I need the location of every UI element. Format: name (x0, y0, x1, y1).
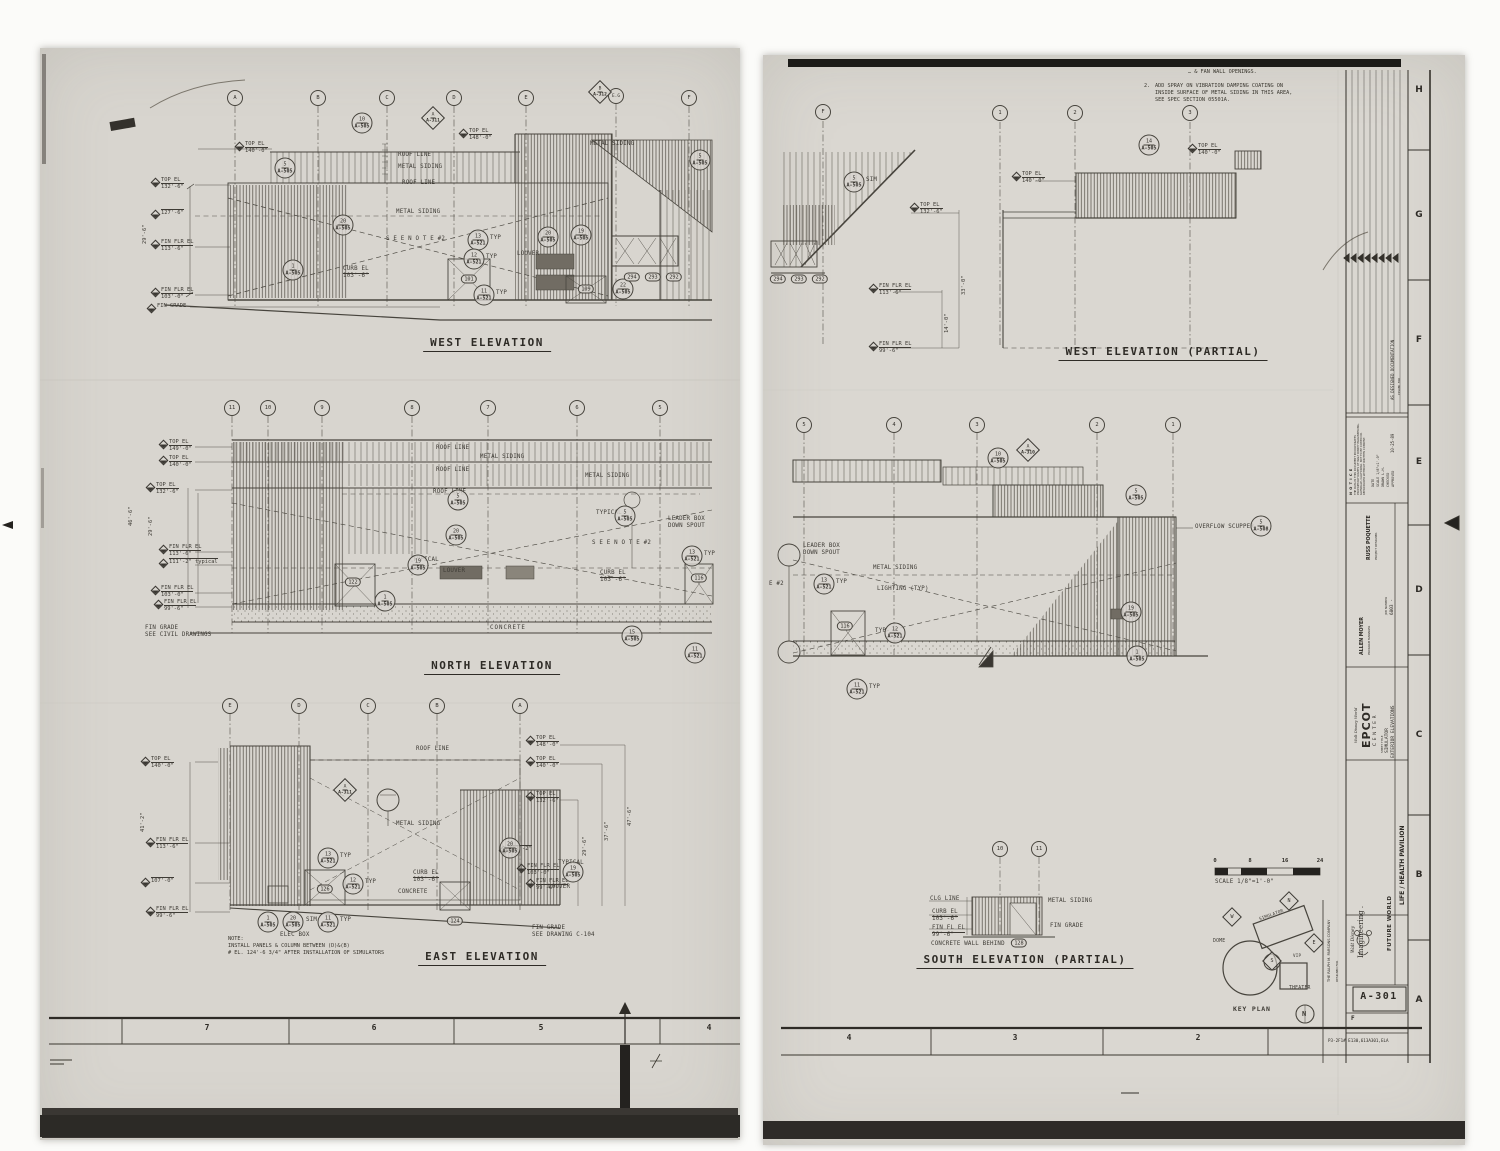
drawing-label: LOUVER (548, 884, 570, 891)
detail-bubble: 20A-505 (538, 227, 559, 248)
epcot-logo: EPCOT (1360, 702, 1373, 748)
drawing-label: LOUVER (443, 568, 465, 575)
detail-bubble: 1A-505 (375, 591, 396, 612)
drawing-label: CONCRETE (398, 889, 428, 896)
drawing-label: 103'-6" (932, 916, 958, 923)
drawing-label: METAL SIDING (590, 141, 634, 148)
drawing-title: EAST ELEVATION (418, 950, 546, 966)
border-row-letter: H (1415, 85, 1423, 95)
grid-bubble: F (681, 90, 697, 106)
grid-bubble: 5 (652, 400, 668, 416)
drawing-label: CONCRETE WALL BEHIND (931, 941, 1005, 948)
elevation-marker: FIN FLR EL99'-6" (155, 599, 196, 612)
general-note: SEE SPEC SECTION 05501A. (1155, 97, 1230, 104)
grid-bubble: E (222, 698, 238, 714)
typ-label: TYP (869, 684, 880, 691)
grid-bubble: 10 (260, 400, 276, 416)
margin-arrow (2, 521, 13, 529)
elevation-marker: FIN FLR EL99'-6" (147, 906, 188, 919)
keyplan-title: KEY PLAN (1233, 1005, 1271, 1013)
elevation-marker: 107'-0" (142, 877, 174, 886)
drawing-label: FIN GRADE (145, 625, 178, 632)
room-tag: 293 (645, 273, 661, 282)
keyplan-vip-label: VIP (1293, 953, 1301, 960)
drawing-label: METAL SIDING (1048, 898, 1092, 905)
detail-bubble: 5A-505 (275, 158, 296, 179)
grid-bubble: 1 (1165, 417, 1181, 433)
drawing-label: ROOF LINE (436, 445, 469, 452)
detail-bubble: 5A-505 (1126, 485, 1147, 506)
detail-bubble: 19A-505 (1121, 602, 1142, 623)
drawing-label: LEADER BOX (668, 516, 705, 523)
sheet-left-border (40, 1002, 740, 1138)
dimension-label: 33'-0" (961, 276, 967, 295)
detail-bubble: 15A-505 (622, 626, 643, 647)
drawing-title: SOUTH ELEVATION (PARTIAL) (916, 953, 1133, 969)
drawing-label: 99'-6" (932, 932, 954, 939)
elevation-marker: FIN FLR EL103'-0" (518, 863, 559, 876)
border-row-letter: C (1416, 730, 1423, 740)
elevation-marker: TOP EL140'-0" (236, 141, 268, 154)
dimension-label: 29'-6" (582, 837, 588, 856)
border-row-letter: D (1415, 585, 1422, 595)
west-partial-linework (771, 121, 1261, 348)
grid-bubble: C (379, 90, 395, 106)
grid-bubble: F (815, 104, 831, 120)
room-tag: 128 (1011, 939, 1027, 948)
elevation-marker: TOP EL132'-6" (147, 482, 179, 495)
border-cell-number: 3 (1013, 1033, 1018, 1042)
elevation-marker: TOP EL148'-0" (460, 128, 492, 141)
room-tag: 293 (791, 275, 807, 284)
revision-letter: F (1351, 1015, 1355, 1022)
detail-bubble: 13A-521 (318, 848, 339, 869)
elevation-marker: FIN FLR EL113'-6" (152, 239, 193, 252)
revision-description: AS DESIGNED DOCUMENTATION (1390, 340, 1395, 400)
keyplan-theater-label: THEATER (1289, 986, 1311, 993)
program-manager-label: PROGRAM MANAGER (1367, 626, 1371, 655)
sheet-title-label: SHEET TITLE (1380, 735, 1384, 753)
border-row-letter: A (1416, 995, 1423, 1005)
dimension-label: 41'-2" (140, 813, 146, 832)
field-scale: SCALE 1/8"=1'-0" (1376, 454, 1380, 487)
grid-bubble: A (227, 90, 243, 106)
elevation-marker: TOP EL140'-0" (1013, 171, 1045, 184)
room-tag: 126 (317, 885, 333, 894)
border-cell-number: 7 (205, 1023, 210, 1032)
border-row-letter: E (1416, 457, 1422, 467)
typ-label: TYP (486, 254, 497, 261)
drawing-label: CONCRETE (490, 625, 526, 632)
typ-label: TYP (365, 879, 376, 886)
drawing-label: OVERFLOW SCUPPER (1195, 524, 1254, 531)
sheet-number: A-301 (1360, 991, 1398, 1002)
keyplan-dome-label: DOME (1213, 939, 1225, 946)
job-number-label: JOB NUMBER (1384, 597, 1388, 615)
drawing-label: FIN GRADE (532, 925, 565, 932)
dimension-label: 46'-6" (128, 507, 134, 526)
drawing-label: ROOF LINE (398, 152, 431, 159)
typ-label: TYP (490, 235, 501, 242)
detail-bubble: 20A-505 (333, 215, 354, 236)
drawing-label: SEE CIVIL DRAWINGS (145, 632, 211, 639)
east-note-line: INSTALL PANELS & COLUMN BETWEEN (D)&(B) (228, 943, 350, 950)
grid-bubble: 3 (1182, 105, 1198, 121)
typ-label: TYP (496, 290, 507, 297)
detail-bubble: 19A-505 (563, 862, 584, 883)
detail-bubble: 12A-521 (464, 249, 485, 270)
drawing-label: LEADER BOX (803, 543, 840, 550)
detail-bubble: 10A-505 (352, 113, 373, 134)
room-tag: 116 (837, 622, 853, 631)
revision-date: 10-25-89 (1390, 434, 1395, 453)
elevation-marker: TOP EL148'-0" (527, 735, 559, 748)
room-tag: 292 (812, 275, 828, 284)
revision-issued-label: ISSUED FOR (1397, 378, 1401, 395)
elevation-marker: TOP EL132'-6" (152, 177, 184, 190)
elevation-marker: TOP EL149'-0" (160, 439, 192, 452)
detail-bubble: 11A-521 (685, 643, 706, 664)
drawing-title: WEST ELEVATION (PARTIAL) (1059, 345, 1268, 361)
elevation-marker: FIN FLR EL103'-0" (152, 287, 193, 300)
border-row-letter: F (1416, 335, 1422, 345)
elevation-marker: FIN FLR EL103'-0" (152, 585, 193, 598)
east-note-line: # EL. 124'-6 3/4" AFTER INSTALLATION OF … (228, 950, 384, 957)
grid-bubble: B (310, 90, 326, 106)
grid-bubble: 10 (992, 841, 1008, 857)
typ-label: TYP (340, 853, 351, 860)
drawing-label: SIM (306, 917, 317, 924)
drawing-label: ELEC BOX (280, 932, 310, 939)
job-number-value: 6803 - (1390, 599, 1395, 615)
detail-bubble: 13A-521 (468, 230, 489, 251)
scale-tick: 24 (1317, 858, 1324, 864)
typ-label: TYP (875, 628, 886, 635)
scale-tick: 16 (1282, 858, 1289, 864)
room-tag: 109 (578, 285, 594, 294)
drawing-label: DOWN SPOUT (668, 523, 705, 530)
elevation-marker: FIN FLR EL113'-6" (147, 837, 188, 850)
elevation-marker: TOP EL132'-6" (527, 791, 559, 804)
detail-bubble: 22A-505 (613, 279, 634, 300)
detail-bubble: 1A-505 (258, 912, 279, 933)
designed-for-label: DESIGNED FOR (1335, 961, 1339, 982)
elevation-marker: TOP EL140'-0" (1189, 143, 1221, 156)
detail-bubble: 19A-505 (408, 555, 429, 576)
detail-bubble: 1A-505 (283, 260, 304, 281)
field-approved: APPROVED (1391, 469, 1395, 487)
detail-bubble: 13A-521 (682, 546, 703, 567)
drawing-label: ROOF LINE (402, 180, 435, 187)
drawing-label: 103'-6" (343, 273, 369, 280)
drawing-label: METAL SIDING (398, 164, 442, 171)
project-area: FUTURE WORLD (1387, 896, 1393, 951)
grid-bubble: D (291, 698, 307, 714)
drawing-label: 103'-6" (413, 877, 439, 884)
elevation-marker: 111'-2" typical (160, 558, 218, 567)
drawing-title: NORTH ELEVATION (424, 659, 560, 675)
border-cell-number: 6 (372, 1023, 377, 1032)
microfilm-code: P3-2F1# E130,613A301,ELA (1328, 1038, 1389, 1043)
dimension-label: 47'-6" (627, 807, 633, 826)
room-tag: 294 (770, 275, 786, 284)
notice-heading: N O T I C E (1349, 468, 1353, 495)
grid-bubble: D (446, 90, 462, 106)
detail-bubble: 1A-505 (1127, 646, 1148, 667)
key-plan-linework (1215, 868, 1320, 1023)
dimension-label: 14'-0" (944, 314, 950, 333)
grid-bubble: 2 (1089, 417, 1105, 433)
parsons-company: THE RALPH M. PARSONS COMPANY (1327, 920, 1331, 982)
sheet-title-line1: SIMULATOR (1385, 728, 1390, 753)
border-cell-number: 4 (707, 1023, 712, 1032)
walt-disney-world-script: Walt Disney World (1353, 708, 1358, 743)
drawing-label: LOUVER (517, 251, 539, 258)
sheet-left: A B C D E E.G F BA-312 AA-311 TOP EL140'… (40, 48, 740, 1140)
room-tag: 116 (691, 574, 707, 583)
grid-bubble: 11 (224, 400, 240, 416)
notice-body: THE DATA IN THIS DOCUMENT INCORPORATES P… (1354, 421, 1366, 495)
project-designer-name: RUSS POQUETTE (1367, 515, 1372, 560)
field-drawn: DRAWN L.H. (1381, 467, 1385, 487)
typ-label: TYP (704, 551, 715, 558)
drawing-label: FIN GRADE (1050, 923, 1083, 930)
walt-disney-script: Walt Disney (1351, 926, 1356, 953)
detail-bubble: 12A-521 (885, 623, 906, 644)
detail-bubble: 11A-521 (318, 912, 339, 933)
pavilion-name: LIFE / HEALTH PAVILION (1399, 825, 1406, 905)
general-note: … & FAN WALL OPENINGS. (1188, 69, 1257, 76)
scale-tick: 0 (1213, 858, 1216, 864)
drawing-label: METAL SIDING (480, 454, 524, 461)
dimension-label: 29'-6" (148, 517, 154, 536)
drawing-label: METAL SIDING (873, 565, 917, 572)
grid-bubble: 8 (404, 400, 420, 416)
detail-bubble: 10A-505 (988, 448, 1009, 469)
grid-bubble: 5 (796, 417, 812, 433)
drawing-label: CLG LINE (930, 896, 960, 903)
drawing-label: 103'-6" (600, 577, 626, 584)
border-row-letter: G (1415, 210, 1422, 220)
sheet-right: … & FAN WALL OPENINGS. 2. ADD SPRAY ON V… (763, 55, 1465, 1145)
drawing-label: E #2 (769, 581, 784, 588)
field-date: DATE (1371, 477, 1375, 487)
elevation-marker: TOP EL132'-6" (911, 202, 943, 215)
program-manager-name: ALLEN MOYER (1360, 617, 1365, 655)
drawing-label: LIGHTING (TYP) (877, 586, 929, 593)
grid-bubble: A (512, 698, 528, 714)
room-tag: 294 (624, 273, 640, 282)
drawing-label: ROOF LINE (436, 467, 469, 474)
east-note-line: NOTE: (228, 936, 244, 943)
elevation-marker: 127'-6" (152, 209, 184, 218)
scale-label: SCALE 1/8"=1'-0" (1215, 879, 1274, 886)
drawing-label: METAL SIDING (585, 473, 629, 480)
detail-bubble: 5A-505 (615, 506, 636, 527)
sim-label: SIM (866, 177, 877, 184)
grid-bubble: E (518, 90, 534, 106)
scanned-blueprint-pages: { "s1": { "border_cells": ["7","6","5","… (0, 0, 1500, 1151)
typ-label: TYP (340, 917, 351, 924)
detail-bubble: 5A-505 (690, 150, 711, 171)
detail-bubble: 14A-505 (1139, 135, 1160, 156)
south-elevation-linework (778, 433, 1208, 667)
typ-label: TYP (836, 579, 847, 586)
general-note: INSIDE SURFACE OF METAL SIDING IN THIS A… (1155, 90, 1292, 97)
elevation-marker: FIN GRADE (148, 303, 186, 312)
epcot-center-logo: CENTER (1373, 713, 1378, 746)
grid-bubble: 7 (480, 400, 496, 416)
elevation-marker: TOP EL140'-0" (160, 455, 192, 468)
grid-bubble: 1 (992, 105, 1008, 121)
imagineering-logo: Imagineering . (1357, 906, 1365, 958)
drawing-label: METAL SIDING (396, 821, 440, 828)
elevation-marker: FIN FLR EL113'-6" (870, 283, 911, 296)
project-designer-label: PROJECT DESIGNER (1374, 533, 1378, 560)
elevation-marker: FIN FLR EL113'-6" (160, 544, 201, 557)
sheet-right-linework (763, 55, 1465, 1145)
grid-bubble: 9 (314, 400, 330, 416)
elevation-marker: TOP EL140'-0" (142, 756, 174, 769)
detail-bubble: 11A-521 (474, 285, 495, 306)
detail-bubble: 5A-505 (448, 490, 469, 511)
room-tag: 124 (447, 917, 463, 926)
drawing-title: WEST ELEVATION (423, 336, 551, 352)
detail-bubble: 20A-505 (283, 912, 304, 933)
room-tag: 122 (345, 578, 361, 587)
detail-bubble: 5A-505 (844, 172, 865, 193)
border-cell-number: 2 (1196, 1033, 1201, 1042)
border-cell-number: 5 (539, 1023, 544, 1032)
detail-bubble: 20A-505 (446, 525, 467, 546)
field-checked: CHECKED (1386, 471, 1390, 487)
detail-bubble: 20A-505 (500, 838, 521, 859)
dimension-label: 37'-6" (604, 822, 610, 841)
detail-bubble: 11A-521 (847, 679, 868, 700)
north-arrow: N (1302, 1010, 1306, 1018)
scale-tick: 8 (1248, 858, 1251, 864)
grid-bubble: 4 (886, 417, 902, 433)
grid-bubble: 11 (1031, 841, 1047, 857)
detail-bubble: 19A-505 (571, 225, 592, 246)
border-row-letter: B (1416, 870, 1423, 880)
drawing-label: S E E N O T E #2 (592, 540, 651, 547)
border-cell-number: 4 (847, 1033, 852, 1042)
elevation-marker: TOP EL140'-0" (527, 756, 559, 769)
sheet-title-line2: EXTERIOR ELEVATIONS (1391, 705, 1396, 758)
room-tag: 292 (666, 273, 682, 282)
grid-bubble: C (360, 698, 376, 714)
general-note: ADD SPRAY ON VIBRATION DAMPING COATING O… (1155, 83, 1283, 90)
grid-bubble: 3 (969, 417, 985, 433)
grid-bubble: 2 (1067, 105, 1083, 121)
general-note: 2. (1144, 83, 1150, 90)
drawing-label: ROOF LINE (416, 746, 449, 753)
drawing-label: SEE DRAWING C-104 (532, 932, 595, 939)
room-tag: 101 (461, 275, 477, 284)
grid-bubble: B (429, 698, 445, 714)
dimension-label: 29'-6" (142, 225, 148, 244)
grid-bubble: 6 (569, 400, 585, 416)
drawing-label: METAL SIDING (396, 209, 440, 216)
drawing-label: DOWN SPOUT (803, 550, 840, 557)
detail-bubble: 13A-521 (814, 574, 835, 595)
detail-bubble: 12A-521 (343, 874, 364, 895)
detail-bubble: 5A-508 (1251, 516, 1272, 537)
elevation-marker: FIN FLR EL99'-6" (870, 341, 911, 354)
drawing-label: S E E N O T E #2 (386, 236, 445, 243)
